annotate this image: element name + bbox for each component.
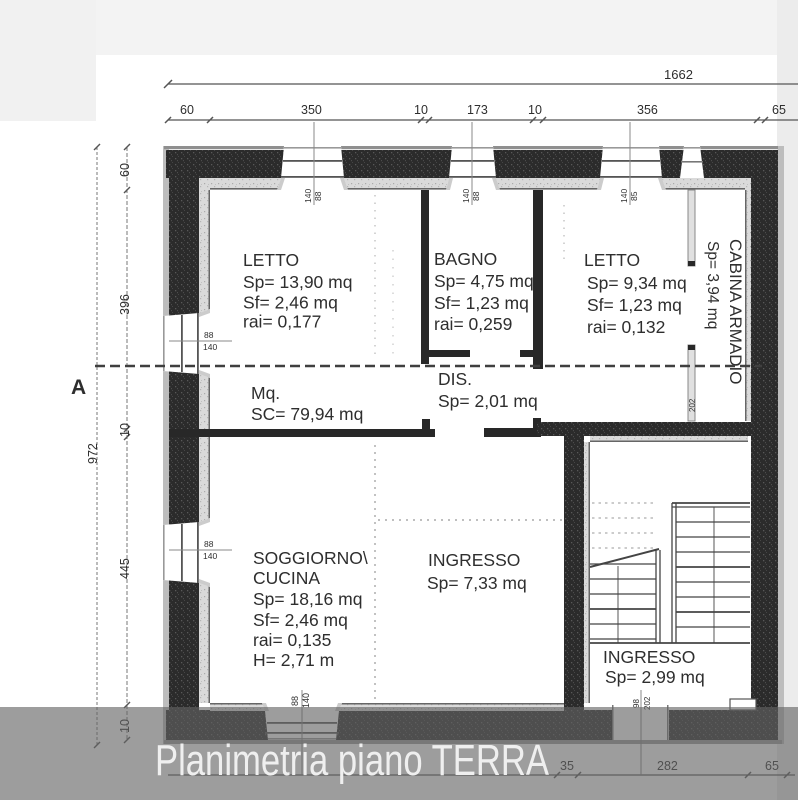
svg-text:1662: 1662 — [664, 67, 693, 82]
svg-text:88: 88 — [471, 191, 481, 201]
svg-text:173: 173 — [467, 103, 488, 117]
svg-text:Sp= 7,33 mq: Sp= 7,33 mq — [427, 573, 527, 593]
svg-text:INGRESSO: INGRESSO — [603, 647, 695, 667]
svg-text:356: 356 — [637, 103, 658, 117]
svg-text:396: 396 — [118, 294, 132, 315]
svg-text:Sp= 13,90 mq: Sp= 13,90 mq — [243, 272, 352, 292]
svg-text:60: 60 — [180, 103, 194, 117]
svg-text:Sf= 2,46 mq: Sf= 2,46 mq — [243, 293, 338, 313]
svg-text:H= 2,71 m: H= 2,71 m — [253, 650, 334, 670]
svg-text:65: 65 — [772, 103, 786, 117]
svg-text:INGRESSO: INGRESSO — [428, 550, 520, 570]
svg-text:rai= 0,177: rai= 0,177 — [243, 312, 321, 332]
svg-text:Sp= 9,34 mq: Sp= 9,34 mq — [587, 273, 687, 293]
svg-text:A: A — [71, 376, 86, 399]
svg-text:Mq.: Mq. — [251, 383, 280, 403]
svg-text:350: 350 — [301, 103, 322, 117]
svg-text:140: 140 — [461, 189, 471, 203]
svg-text:Sp= 4,75 mq: Sp= 4,75 mq — [434, 271, 534, 291]
svg-text:Sf= 2,46 mq: Sf= 2,46 mq — [253, 610, 348, 630]
svg-text:LETTO: LETTO — [584, 250, 640, 270]
svg-text:140: 140 — [301, 693, 311, 708]
svg-text:rai= 0,135: rai= 0,135 — [253, 630, 331, 650]
svg-text:Sp= 2,99 mq: Sp= 2,99 mq — [605, 667, 705, 687]
svg-text:85: 85 — [629, 191, 639, 201]
svg-text:Sf= 1,23 mq: Sf= 1,23 mq — [587, 295, 682, 315]
svg-text:SOGGIORNO\: SOGGIORNO\ — [253, 548, 368, 568]
svg-text:445: 445 — [118, 558, 132, 579]
svg-text:10: 10 — [118, 423, 132, 437]
svg-text:88: 88 — [204, 539, 214, 549]
svg-text:Planimetria piano TERRA: Planimetria piano TERRA — [155, 736, 550, 785]
svg-text:202: 202 — [688, 398, 697, 412]
svg-text:140: 140 — [619, 189, 629, 203]
svg-text:140: 140 — [203, 551, 217, 561]
svg-text:CABINA ARMADIO: CABINA ARMADIO — [726, 239, 745, 384]
svg-text:rai= 0,259: rai= 0,259 — [434, 314, 512, 334]
svg-text:BAGNO: BAGNO — [434, 249, 497, 269]
svg-text:Sp= 18,16 mq: Sp= 18,16 mq — [253, 589, 362, 609]
svg-text:LETTO: LETTO — [243, 250, 299, 270]
svg-text:972: 972 — [86, 443, 100, 464]
svg-text:10: 10 — [528, 103, 542, 117]
svg-text:60: 60 — [118, 163, 132, 177]
svg-text:88: 88 — [290, 696, 300, 706]
svg-text:SC= 79,94 mq: SC= 79,94 mq — [251, 404, 363, 424]
svg-text:Sf= 1,23 mq: Sf= 1,23 mq — [434, 293, 529, 313]
svg-text:98: 98 — [632, 699, 641, 708]
svg-text:rai= 0,132: rai= 0,132 — [587, 317, 665, 337]
svg-text:DIS.: DIS. — [438, 369, 472, 389]
svg-text:10: 10 — [414, 103, 428, 117]
svg-text:CUCINA: CUCINA — [253, 568, 320, 588]
svg-text:Sp= 2,01 mq: Sp= 2,01 mq — [438, 391, 538, 411]
svg-text:Sp= 3,94 mq: Sp= 3,94 mq — [704, 241, 721, 329]
svg-text:140: 140 — [303, 189, 313, 203]
svg-text:140: 140 — [203, 342, 217, 352]
svg-text:88: 88 — [313, 191, 323, 201]
svg-text:88: 88 — [204, 330, 214, 340]
